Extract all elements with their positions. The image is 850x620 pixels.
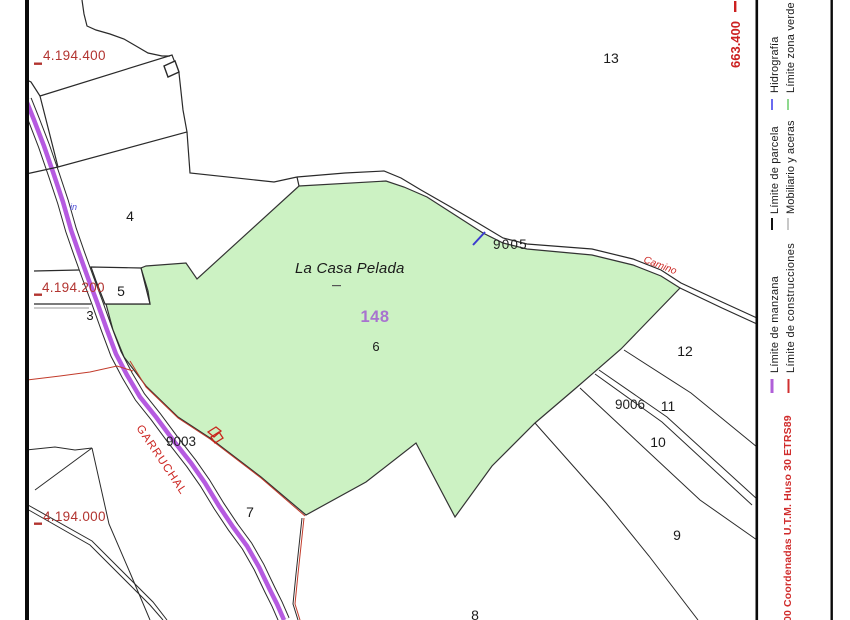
svg-text:9003: 9003 [166, 434, 196, 449]
svg-text:9005: 9005 [493, 237, 528, 252]
svg-text:7: 7 [246, 504, 254, 520]
svg-text:4.194.400: 4.194.400 [43, 48, 106, 63]
svg-text:Límite de parcela: Límite de parcela [769, 126, 781, 214]
svg-text:00 Coordenadas U.T.M. Huso 30: 00 Coordenadas U.T.M. Huso 30 ETRS89 [782, 415, 794, 620]
svg-text:9: 9 [673, 527, 681, 543]
svg-text:Hidrografía: Hidrografía [769, 36, 781, 93]
svg-text:148: 148 [360, 308, 389, 326]
svg-text:12: 12 [677, 343, 693, 359]
svg-text:Mobiliario y aceras: Mobiliario y aceras [785, 120, 797, 214]
svg-text:Límite de construcciones: Límite de construcciones [785, 243, 797, 373]
svg-text:9006: 9006 [615, 397, 645, 412]
svg-text:11: 11 [661, 398, 676, 414]
svg-text:10: 10 [650, 434, 666, 450]
svg-text:in: in [70, 202, 77, 212]
svg-text:Límite de manzana: Límite de manzana [769, 275, 781, 373]
svg-text:5: 5 [117, 283, 125, 299]
svg-text:663.400: 663.400 [728, 21, 743, 68]
svg-text:Límite zona verde: Límite zona verde [785, 2, 797, 93]
svg-text:4.194.200: 4.194.200 [42, 280, 105, 295]
svg-text:4.194.000: 4.194.000 [43, 509, 106, 524]
svg-text:3: 3 [86, 308, 93, 323]
svg-text:La Casa Pelada: La Casa Pelada [295, 260, 405, 277]
svg-text:13: 13 [603, 50, 619, 66]
svg-text:6: 6 [372, 339, 379, 354]
svg-text:4: 4 [126, 208, 134, 224]
svg-text:8: 8 [471, 607, 479, 620]
